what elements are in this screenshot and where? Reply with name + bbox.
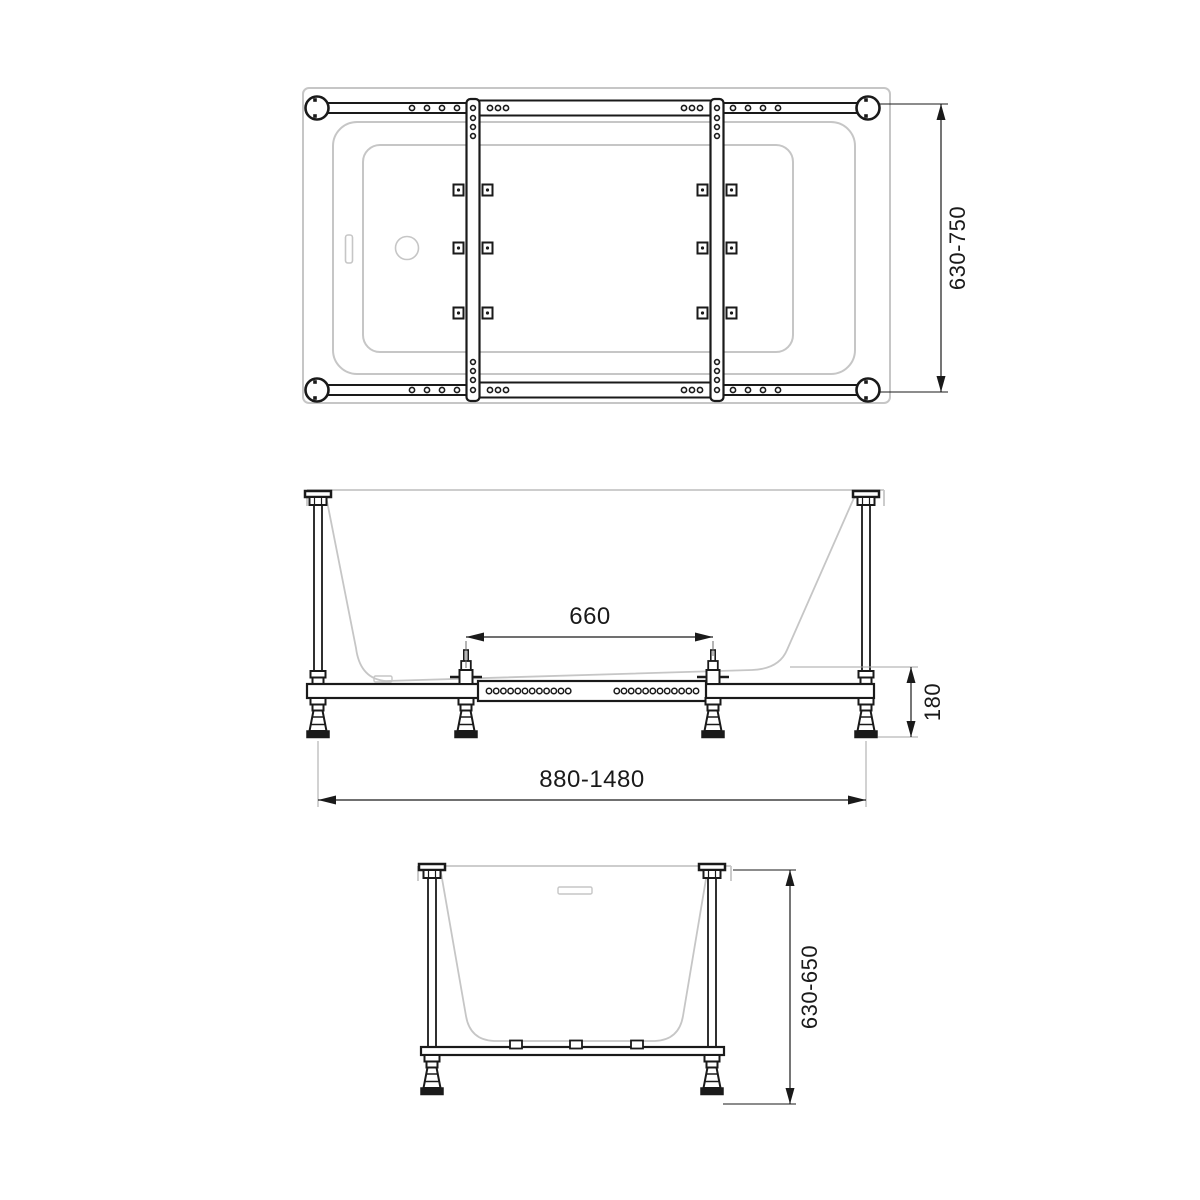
rod-clamp-right: [859, 671, 874, 684]
base-rail-side: [421, 1041, 724, 1056]
center-rail-segment-bottom: [479, 383, 711, 398]
overflow-slot-icon: [558, 887, 592, 894]
dimension-label-height: 630-650: [797, 945, 822, 1029]
tub-outer-rim: [303, 88, 890, 403]
top-plan-view: 630-750: [303, 88, 970, 403]
foot-right: [701, 1055, 723, 1095]
foot-inner-left: [455, 698, 477, 738]
bathtub-outline-front: [307, 490, 884, 682]
center-rail-segment-top: [479, 101, 711, 116]
dimension-label-length: 880-1480: [539, 766, 644, 793]
dimension-label-frame-height: 180: [920, 683, 945, 721]
dimension-length-range: 880-1480: [318, 741, 866, 807]
arrow-down-icon: [907, 721, 916, 737]
bathtub-outline-top: [303, 88, 890, 403]
rim-cap-right: [853, 491, 879, 505]
adjustable-feet-side: [421, 1055, 723, 1095]
bathtub-outline-side: [418, 866, 731, 1041]
foot-left: [421, 1055, 443, 1095]
dimension-center-span: 660: [466, 603, 713, 668]
tub-inner-rim: [333, 122, 855, 374]
overflow-slot-icon: [346, 235, 353, 263]
arrow-left-icon: [318, 796, 336, 805]
rim-hanger-rods-front: [305, 491, 879, 685]
arrow-right-icon: [848, 796, 866, 805]
arrow-left-icon: [466, 633, 484, 642]
rail-tab: [570, 1041, 582, 1049]
rim-hanger-rods-side: [419, 864, 725, 1047]
rim-cap-right: [699, 864, 725, 878]
arrow-down-icon: [937, 376, 946, 392]
bathtub-frame-technical-drawing: 630-750: [0, 0, 1200, 1200]
arrow-up-icon: [907, 667, 916, 683]
rail-holes: [409, 105, 780, 392]
rod-clamp-left: [311, 671, 326, 684]
foot-inner-right: [702, 698, 724, 738]
adjustable-feet-front: [307, 698, 877, 738]
arrow-down-icon: [786, 1088, 795, 1104]
front-elevation-view: 660 180 880-1480: [305, 490, 945, 807]
dimension-depth-range: 630-750: [880, 104, 970, 392]
dimension-height-range: 630-650: [723, 870, 822, 1104]
rim-cap-left: [419, 864, 445, 878]
mounting-bracket-plates: [454, 185, 737, 319]
arrow-right-icon: [695, 633, 713, 642]
base-rail-front: [307, 681, 874, 701]
drain-hole-icon: [396, 237, 419, 260]
foot-outer-right: [855, 698, 877, 738]
dimension-label-center-span: 660: [569, 603, 611, 630]
drawing-canvas: 630-750: [0, 0, 1200, 1200]
arrow-up-icon: [937, 104, 946, 120]
rim-cap-left: [305, 491, 331, 505]
rail-tab: [631, 1041, 643, 1049]
foot-outer-left: [307, 698, 329, 738]
rail-tab: [510, 1041, 522, 1049]
side-elevation-view: 630-650: [418, 864, 822, 1104]
dimension-label-depth: 630-750: [945, 206, 970, 290]
arrow-up-icon: [786, 870, 795, 886]
